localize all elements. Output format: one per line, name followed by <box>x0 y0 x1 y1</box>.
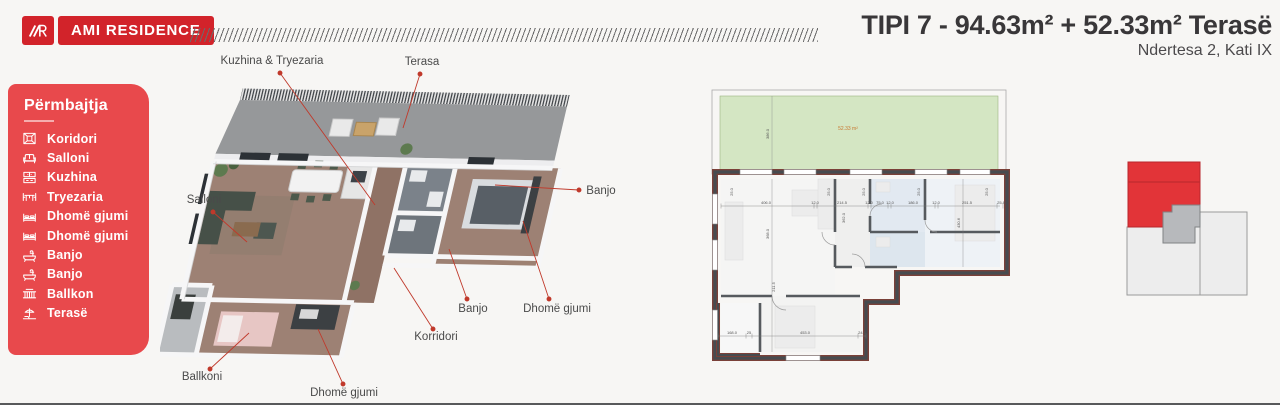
legend-label: Dhomë gjumi <box>47 229 128 243</box>
contents-panel: Përmbajtja Koridori Salloni Kuzhina <box>8 84 149 355</box>
svg-text:12.0: 12.0 <box>865 200 874 205</box>
balcony-icon <box>21 286 38 302</box>
legend-label: Tryezaria <box>47 190 103 204</box>
contents-title: Përmbajtja <box>8 84 149 115</box>
dining-table-icon <box>21 189 38 205</box>
svg-text:211.5: 211.5 <box>771 281 776 291</box>
room-label-korridori: Korridori <box>414 331 457 343</box>
svg-text:25.0: 25.0 <box>729 187 734 196</box>
room-label-kuzhina-tryezaria: Kuzhina & Tryezaria <box>221 55 324 67</box>
terrace-area <box>720 96 998 172</box>
legend-label: Salloni <box>47 151 89 165</box>
svg-text:430.6: 430.6 <box>956 217 961 228</box>
legend-label: Dhomë gjumi <box>47 209 128 223</box>
legend-item-dhome-gjumi-2: Dhomë gjumi <box>8 226 149 245</box>
building-locator <box>1120 150 1255 305</box>
room-label-salloni: Salloni <box>187 194 222 206</box>
legend-item-ballkon: Ballkon <box>8 284 149 303</box>
svg-text:25.8: 25.8 <box>997 200 1006 205</box>
building-footprint-right <box>1200 212 1247 295</box>
building-3d <box>160 88 578 361</box>
brand-logo: AMI RESIDENCE <box>22 16 214 45</box>
legend-label: Terasë <box>47 306 88 320</box>
corridor-icon <box>21 131 38 147</box>
legend-item-kuzhina: Kuzhina <box>8 168 149 187</box>
hatch-divider <box>190 28 818 42</box>
room-label-banjo-1: Banjo <box>586 185 615 197</box>
room-label-banjo-2: Banjo <box>458 303 487 315</box>
svg-text:251.5: 251.5 <box>962 200 973 205</box>
bed-icon <box>21 228 38 244</box>
legend-item-salloni: Salloni <box>8 148 149 167</box>
svg-text:25.0: 25.0 <box>984 187 989 196</box>
room-label-dhome-gjumi-2: Dhomë gjumi <box>310 387 378 399</box>
logo-monogram-icon <box>22 16 54 45</box>
terrace-icon <box>21 305 38 321</box>
svg-text:25.0: 25.0 <box>826 187 831 196</box>
svg-text:368.0: 368.0 <box>765 228 770 239</box>
legend-item-dhome-gjumi-1: Dhomë gjumi <box>8 207 149 226</box>
legend-label: Ballkon <box>47 287 94 301</box>
legend-label: Banjo <box>47 267 83 281</box>
legend-item-banjo-1: Banjo <box>8 245 149 264</box>
legend-item-banjo-2: Banjo <box>8 265 149 284</box>
svg-text:12.0: 12.0 <box>811 200 820 205</box>
svg-text:362.0: 362.0 <box>841 212 846 223</box>
bed-icon <box>21 208 38 224</box>
legend-item-terase: Terasë <box>8 304 149 323</box>
floorplan-2d: 52.33 m² 386.0 <box>700 82 1020 382</box>
svg-text:12.0: 12.0 <box>932 200 941 205</box>
bathtub-icon <box>21 266 38 282</box>
svg-text:75.0: 75.0 <box>876 200 885 205</box>
svg-text:453.0: 453.0 <box>800 330 811 335</box>
room-label-dhome-gjumi-1: Dhomë gjumi <box>523 303 591 315</box>
bathtub-icon <box>21 247 38 263</box>
svg-text:406.0: 406.0 <box>761 200 772 205</box>
svg-text:25: 25 <box>747 330 752 335</box>
room-label-terasa: Terasa <box>405 56 440 68</box>
terrace-area-label: 52.33 m² <box>838 126 858 132</box>
kitchen-icon <box>21 169 38 185</box>
svg-text:168.0: 168.0 <box>727 330 738 335</box>
legend-label: Banjo <box>47 248 83 262</box>
svg-text:25.0: 25.0 <box>861 187 866 196</box>
legend-item-koridori: Koridori <box>8 129 149 148</box>
sofa-icon <box>21 150 38 166</box>
svg-text:12.0: 12.0 <box>886 200 895 205</box>
svg-text:24.5: 24.5 <box>858 330 867 335</box>
page-subtitle: Ndertesa 2, Kati IX <box>861 42 1272 60</box>
svg-text:186.0: 186.0 <box>908 200 919 205</box>
floorplan-3d <box>160 72 610 402</box>
page-title: TIPI 7 - 94.63m² + 52.33m² Terasë <box>861 11 1272 41</box>
legend-label: Koridori <box>47 132 97 146</box>
room-label-ballkoni: Ballkoni <box>182 371 222 383</box>
legend-label: Kuzhina <box>47 170 97 184</box>
svg-text:25.0: 25.0 <box>916 187 921 196</box>
svg-text:214.5: 214.5 <box>837 200 848 205</box>
legend-item-tryezaria: Tryezaria <box>8 187 149 206</box>
title-underline <box>24 120 54 122</box>
svg-text:386.0: 386.0 <box>765 128 770 139</box>
